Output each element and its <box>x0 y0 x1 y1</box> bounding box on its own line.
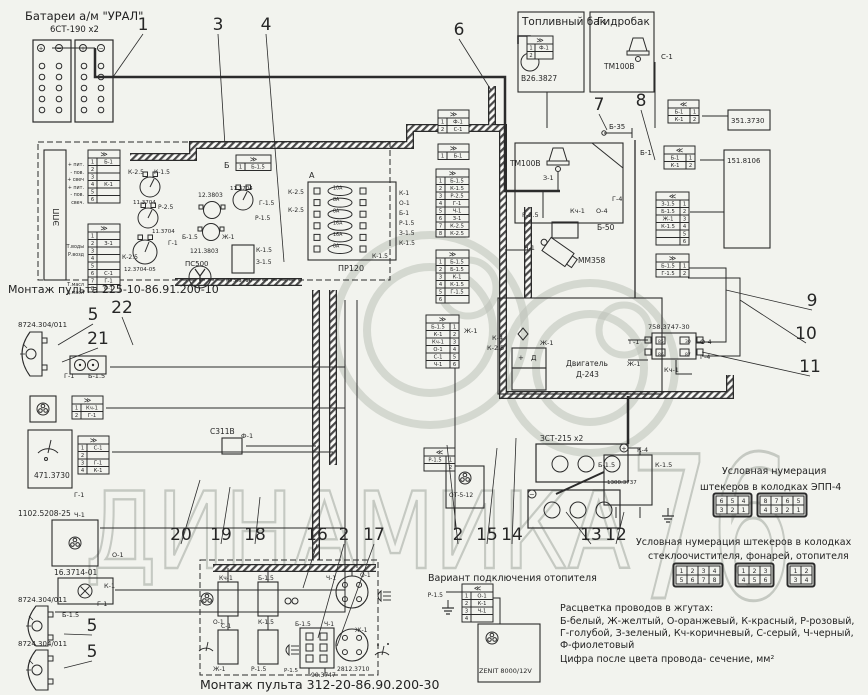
battery-terminal-sign: − <box>56 45 61 52</box>
connector-cell <box>87 452 109 460</box>
headlamp-icon <box>26 349 36 359</box>
pin-grid-number: 4 <box>713 568 717 575</box>
beam-icon <box>286 645 289 655</box>
pin-grid-number: 1 <box>742 507 746 514</box>
callout-number: 7 <box>594 95 605 115</box>
callout-leader <box>122 317 133 345</box>
sensor-terminal <box>556 167 561 172</box>
connector-cell-label: 6 <box>91 197 94 203</box>
connector-cell-label: 2 <box>693 117 696 123</box>
switch-pin <box>148 235 153 240</box>
wire-color-legend-line2: Б-белый, Ж-желтый, О-оранжевый, К-красны… <box>560 616 854 627</box>
wire-label: К-2.5 <box>288 207 304 214</box>
callout-number: 3 <box>213 15 224 35</box>
wire-label: 2812.3710 <box>337 666 370 673</box>
switch-pin <box>342 635 347 640</box>
washer-drop <box>377 644 379 646</box>
callout-leader <box>113 34 143 77</box>
wire-color-legend-line3: Г-голубой, З-зеленый, Кч-коричневый, С-с… <box>560 628 854 639</box>
callout-number: 19 <box>210 525 232 545</box>
wire-label: 471.3730 <box>34 471 70 480</box>
connector-cell-label: З-1 <box>104 241 113 247</box>
wire-label: О-1 <box>112 551 124 559</box>
wire-label: Б-1 <box>399 210 409 217</box>
sensor-terminal <box>540 238 548 246</box>
wire-label: Двигатель <box>566 359 608 368</box>
connector-cell-label: 1 <box>465 594 468 600</box>
connector-cell-label: 7 <box>439 224 442 230</box>
fuse-terminal <box>314 200 320 206</box>
gauge <box>203 224 220 241</box>
wire-label: Б-1.5 <box>598 461 615 469</box>
battery-cell <box>39 96 45 102</box>
connector-cell-label: 6 <box>439 216 442 222</box>
wire-label: ЭПП <box>52 208 61 226</box>
connector-cell-label: Б-1.5 <box>661 209 675 215</box>
callout-leader <box>726 290 812 310</box>
connector-cell-label: О-1 <box>477 594 486 600</box>
connector-cell-label: З-1 <box>453 216 462 222</box>
fuse-terminal <box>360 234 366 240</box>
wire-label: К-1 <box>104 582 115 590</box>
connector-arrow-icon: ≫ <box>100 225 107 233</box>
connector-cell-label: С-1 <box>94 446 103 452</box>
connector-cell-label: К-2.5 <box>450 231 464 237</box>
callout-number: 9 <box>807 291 818 311</box>
connector-cell-label: 1 <box>81 446 84 452</box>
wiper-arm <box>206 642 208 651</box>
connector-cell-label: С-1 <box>104 271 113 277</box>
fuel-tank-title: Топливный бак <box>521 16 606 28</box>
wire-label: С-1 <box>221 623 231 630</box>
sensor-terminal <box>636 57 641 62</box>
pin-grid-number: 8 <box>713 577 717 584</box>
battery-model: 6СТ-190 х2 <box>50 25 99 35</box>
wire-label: свеч. <box>71 201 84 206</box>
connector-cell-label: 2 <box>683 209 686 215</box>
switch-pin <box>138 235 143 240</box>
connector-cell-label: 1 <box>529 46 532 52</box>
pin-grid-number: 4 <box>742 577 746 584</box>
connector-arrow-icon: ≫ <box>90 437 97 445</box>
connector-cell-label: Г-1.5 <box>661 271 674 277</box>
sensor-base <box>627 51 649 55</box>
connector-cell-label: Ч-1 <box>434 362 443 368</box>
connector-arrow-icon: ≪ <box>676 147 683 155</box>
callout-number: 15 <box>476 525 498 545</box>
callout-number: 20 <box>170 525 192 545</box>
wire-label: ПС500 <box>185 260 209 268</box>
connector-cell-label: 6 <box>453 362 456 368</box>
connector-cell-label: Б-1 <box>104 160 113 166</box>
battery-title: Батареи а/м "УРАЛ" <box>25 9 143 23</box>
battery-cell <box>56 63 62 69</box>
wire-label: Р-1.5 <box>251 666 267 673</box>
wire-label: О-1 <box>399 200 410 207</box>
connector-cell-label: 2 <box>453 332 456 338</box>
fuse-terminal <box>360 188 366 194</box>
wire-label: Б-1.5 <box>182 234 198 241</box>
pin-grid-number: 2 <box>753 568 757 575</box>
callout-number: 13 <box>580 525 602 545</box>
connector-cell-label: Г-1 <box>453 201 461 207</box>
callout-leader <box>218 34 225 146</box>
connector-cell <box>97 173 120 181</box>
fuse-rating-label: 16А <box>333 232 343 238</box>
pin-grid-number: 4 <box>764 507 768 514</box>
block-pin <box>306 633 313 640</box>
wire-label: Р.возд <box>68 252 85 258</box>
pin-grid-number: 7 <box>702 577 706 584</box>
hydro-tank-title: Гидробак <box>597 16 650 28</box>
wire-label: 1102.5208-25 <box>18 509 71 518</box>
fan-blade <box>205 594 209 598</box>
connector-cell-label: 3 <box>453 340 456 346</box>
fuse-rating-label: 8А <box>333 197 340 203</box>
connector-cell-label: 6 <box>683 239 686 245</box>
wiper-legend-line2: стеклоочистителя, фонарей, отопителя <box>648 551 849 562</box>
lamp-pin <box>48 612 53 617</box>
callout-number: 12 <box>605 525 627 545</box>
wire-label: К-1.5 <box>258 619 274 626</box>
connector-cell <box>445 296 469 304</box>
pin-grid-number: 3 <box>702 568 706 575</box>
connector-cell-label: З-1.5 <box>661 202 674 208</box>
connector-cell-label: 2 <box>689 163 692 169</box>
connector-cell <box>97 188 120 196</box>
connector-cell-label: О-1 <box>433 347 442 353</box>
headlamp-icon <box>32 665 42 675</box>
battery-terminal-sign: − <box>529 491 534 499</box>
connector-cell-label: 5 <box>439 209 442 215</box>
connector-cell <box>97 166 120 174</box>
connector-cell-label: 1 <box>683 264 686 270</box>
horn-dot <box>92 364 94 366</box>
battery-cell <box>81 107 87 113</box>
wire-label: К-1.5 <box>372 253 388 260</box>
battery-terminal-sign: + <box>80 45 85 52</box>
wire-label: О-4 <box>700 338 712 346</box>
connector-cell-label: С-1 <box>434 355 443 361</box>
pin-grid-number: 3 <box>764 568 768 575</box>
wire-label: Б <box>224 161 230 170</box>
wire-label: Ж-1 <box>464 327 477 335</box>
connector-cell-label: К-1.5 <box>661 224 675 230</box>
connector-cell-label: 1 <box>91 160 94 166</box>
wire-label: З-1.5 <box>256 259 272 266</box>
connector-cell-label: К-1 <box>675 117 684 123</box>
pin-grid-number: 2 <box>805 568 809 575</box>
wire-label: 375.3710 <box>226 278 253 284</box>
pin-grid-number: 2 <box>731 507 735 514</box>
battery-cell <box>39 107 45 113</box>
wire-label: Р-2.5 <box>522 211 539 219</box>
component-box <box>30 396 56 422</box>
connector-arrow-icon: ≫ <box>450 145 457 153</box>
connector-cell-label: 3 <box>91 249 94 255</box>
callout-number: 5 <box>87 642 98 662</box>
connector-cell-label: Ж-1 <box>663 217 674 223</box>
connector-cell <box>97 255 120 263</box>
wire-label: - пов. <box>70 193 84 198</box>
block-pin <box>320 644 327 651</box>
connector-cell-label: Ф-1 <box>539 46 549 52</box>
fan-blade <box>41 404 45 408</box>
pin-grid-number: 1 <box>680 568 684 575</box>
pult2-caption: Монтаж пульта 312-20-86.90.200-30 <box>200 677 439 692</box>
connector-arrow-icon: ≫ <box>250 156 257 164</box>
wire-label: 11.3704 <box>152 229 175 235</box>
fuse <box>328 198 352 207</box>
temperature-sensor <box>629 38 647 51</box>
lamp-pin <box>42 365 47 370</box>
heater-variant-caption: Вариант подключения отопителя <box>428 573 597 584</box>
fuse-terminal <box>360 246 366 252</box>
wire-label: Ж-1 <box>213 666 226 673</box>
fuse-terminal <box>360 200 366 206</box>
connector-cell-label: К-1 <box>671 163 680 169</box>
wire-label: Г-1 <box>629 338 639 346</box>
wire-label: Кч-1 <box>219 575 233 582</box>
block-pin <box>320 655 327 662</box>
wire-label: ТМ100В <box>509 159 541 168</box>
connector-cell-label: Кч-1 <box>432 340 444 346</box>
battery-cell <box>98 85 104 91</box>
connector-cell-label: Б-1 <box>454 154 463 160</box>
callout-leader <box>599 114 607 130</box>
callout-number: 10 <box>795 324 817 344</box>
switch-lever <box>243 192 247 200</box>
callout-number: 11 <box>799 357 821 377</box>
wire-label: Б-1.5 <box>62 611 79 619</box>
fuse <box>328 245 352 254</box>
wire-label: ЗСТ-215 х2 <box>540 434 583 443</box>
fan-blade <box>208 599 212 603</box>
connector-cell-label: 3 <box>91 175 94 181</box>
connector-cell <box>424 464 446 472</box>
connector-cell-label: 3 <box>465 609 468 615</box>
connector-cell-label: К-1 <box>94 468 103 474</box>
connector-arrow-icon: ≪ <box>474 585 481 593</box>
connector-cell-label: 5 <box>91 190 94 196</box>
wire-label: Д-243 <box>576 370 599 379</box>
wire-label: Р-2.5 <box>158 204 174 211</box>
component-box <box>258 630 278 664</box>
battery-cell <box>56 74 62 80</box>
wire-label: Кч-1 <box>664 366 679 374</box>
wire-label: 8724.304/011 <box>18 596 67 604</box>
connector-cell-label: Р-1.5 <box>428 458 441 464</box>
wire-label: 12.3704-05 <box>124 267 156 273</box>
pin-grid-number: 3 <box>794 577 798 584</box>
connector-cell <box>97 262 120 270</box>
fuse <box>328 210 352 219</box>
callout-number: 18 <box>244 525 266 545</box>
wire-label: Ч-1 <box>74 511 85 519</box>
battery-cell <box>98 63 104 69</box>
wire-label: Г-1 <box>64 372 74 380</box>
connector-arrow-icon: ≫ <box>100 151 107 159</box>
pin-grid-number: 1 <box>742 568 746 575</box>
connector-cell-label: Б-1.5 <box>431 325 445 331</box>
pin-grid-number: 2 <box>786 507 790 514</box>
callout-number: 8 <box>636 91 647 111</box>
fan-blade <box>493 638 497 642</box>
wire-label: 11.3704 <box>230 186 253 192</box>
fan-blade <box>490 633 494 637</box>
pin-grid-number: 6 <box>764 577 768 584</box>
callout-number: 17 <box>363 525 385 545</box>
callout-number: 6 <box>454 20 465 40</box>
fuse-rating-label: 16А <box>333 220 343 226</box>
connector-cell <box>97 247 120 255</box>
battery-cell <box>56 107 62 113</box>
wire-label: Ж-1 <box>355 627 368 634</box>
connector-cell-label: 3 <box>439 275 442 281</box>
lamp-pin <box>48 656 53 661</box>
wire-label: В26.3827 <box>521 74 557 83</box>
fuse-terminal <box>314 223 320 229</box>
wire <box>688 268 726 342</box>
wire-label: 85 <box>658 339 664 345</box>
connector-arrow-icon: ≪ <box>669 193 676 201</box>
connector-cell-label: 1 <box>693 110 696 116</box>
battery-cell <box>98 96 104 102</box>
connector-cell-label: Р-2.5 <box>450 194 463 200</box>
wire-label: + <box>518 354 524 362</box>
wire-label: Б-1.5 <box>88 372 105 380</box>
connector-cell <box>656 238 680 246</box>
wire-label: 11.3704 <box>133 200 156 206</box>
fan-blade <box>71 543 75 547</box>
wire-label: Ф-1 <box>241 432 253 440</box>
fuse-rating-label: 10А <box>333 186 343 192</box>
callout-leader <box>702 352 810 376</box>
connector-cell-label: К-1 <box>478 601 487 607</box>
wire-label: - пов. <box>70 171 84 176</box>
fuse-rating-label: 8А <box>333 244 340 250</box>
epp-legend-line1: Условная нумерация <box>722 466 826 477</box>
temperature-sensor <box>549 148 567 161</box>
connector-cell-label: 2 <box>683 271 686 277</box>
washer-drop <box>387 643 389 645</box>
pin-grid-number: 4 <box>805 577 809 584</box>
fuse-terminal <box>314 188 320 194</box>
wire-label: К-2.5 <box>487 344 504 352</box>
wire-label: 151.8106 <box>727 157 761 165</box>
connector-cell-label: 1 <box>75 406 78 412</box>
wire-label: Б-1.5 <box>258 575 274 582</box>
callout-number: 22 <box>111 298 133 318</box>
connector-cell-label: Г-1 <box>88 413 96 419</box>
fuse-terminal <box>314 234 320 240</box>
connector-cell-label: 1 <box>91 234 94 240</box>
pin-grid-number: 1 <box>794 568 798 575</box>
pin-grid-number: 5 <box>680 577 684 584</box>
marker-lamp-icon <box>285 598 291 604</box>
connector-cell-label: 2 <box>441 127 444 133</box>
connector-arrow-icon: ≫ <box>536 37 543 45</box>
connector-cell-label: 1 <box>441 120 444 126</box>
connector-cell-label: Ф-1 <box>453 120 463 126</box>
wire-label: Т.воды <box>66 244 85 250</box>
connector-cell <box>471 615 493 623</box>
connector-arrow-icon: ≫ <box>450 111 457 119</box>
connector-cell-label: К-1 <box>453 275 462 281</box>
battery-terminal-sign: − <box>98 45 103 52</box>
wiper-legend-line1: Условная нумерация штекеров в колодках <box>636 537 852 548</box>
wire-label: 8724.304/011 <box>18 640 67 648</box>
callout-number: 21 <box>87 329 109 349</box>
wire-color-legend-line4: Ф-фиолетовый <box>560 640 634 651</box>
epp-legend-line2: штекеров в колодках ЭПП-4 <box>700 482 841 493</box>
switch-pin <box>357 597 362 602</box>
wire-label: Б-35 <box>609 123 625 131</box>
fuse-terminal <box>314 211 320 217</box>
battery-cell <box>98 107 104 113</box>
horn-dot <box>79 364 81 366</box>
block-pin <box>306 644 313 651</box>
wire-label: 16.3714-01 <box>54 568 97 577</box>
y-glyph <box>200 269 205 276</box>
wire-label: Г-1.5 <box>259 200 275 207</box>
pin-grid-number: 3 <box>775 507 779 514</box>
sensor-base <box>547 161 569 165</box>
connector-cell <box>535 52 553 60</box>
wire-label: Б-1.5 <box>295 621 311 628</box>
wire-label: Ж-1 <box>222 234 235 241</box>
battery-terminal-sign: + <box>621 445 626 453</box>
wire-label: ММ358 <box>578 256 605 265</box>
connector-cell-label: Б-1.5 <box>450 267 464 273</box>
switch-lever <box>145 242 149 252</box>
component-box <box>218 630 238 664</box>
block-pin <box>306 655 313 662</box>
wire-label: Г-4 <box>612 195 622 203</box>
wire-label: Р-1.5 <box>399 220 415 227</box>
callout-leader <box>64 661 92 668</box>
connector-cell-label: 1 <box>239 165 242 171</box>
connector-cell-label: 1 <box>683 202 686 208</box>
wire-label: 12.3803 <box>198 192 223 199</box>
connector-cell <box>97 232 120 240</box>
component-box <box>552 222 578 238</box>
wire-label: Д <box>531 354 537 362</box>
fan-blade <box>203 599 207 603</box>
wire-label: + свеч <box>67 177 84 183</box>
wire-label: О-4 <box>596 207 608 215</box>
connector-cell-label: 3 <box>439 194 442 200</box>
connector-cell-label: Кч-1 <box>86 406 98 412</box>
connector-cell-label: Б-1.5 <box>450 179 464 185</box>
wire-label: Б-1 <box>640 149 652 157</box>
pin-grid-number: 6 <box>786 498 790 505</box>
connector-arrow-icon: ≫ <box>439 316 446 324</box>
wire-label: С311В <box>210 427 235 436</box>
connector-cell-label: К-1.5 <box>450 186 464 192</box>
connector-cell-label: К-1 <box>104 182 113 188</box>
connector-cell-label: 1 <box>439 179 442 185</box>
wire-label: 121.3803 <box>190 248 219 255</box>
fan-blade <box>39 409 43 413</box>
connector-cell-label: 5 <box>453 355 456 361</box>
lamp-pin <box>42 338 47 343</box>
fuse-terminal <box>360 211 366 217</box>
sensor-nut <box>567 256 578 268</box>
connector-arrow-icon: ≪ <box>436 449 443 457</box>
connector-cell-label: 1 <box>689 156 692 162</box>
wire-label: + пит. <box>68 162 84 168</box>
